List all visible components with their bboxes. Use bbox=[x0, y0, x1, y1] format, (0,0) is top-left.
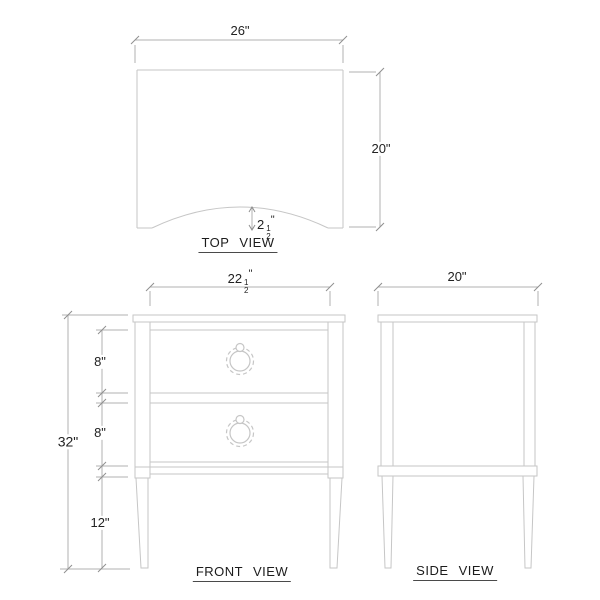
dim-front-width-whole: 22 bbox=[228, 271, 242, 286]
dim-top-width: 26" bbox=[230, 24, 249, 38]
drawer-ring-pull-top bbox=[227, 344, 254, 375]
front-left-leg bbox=[136, 478, 148, 568]
dim-front-drawer2: 8" bbox=[91, 426, 109, 440]
dim-side-depth: 20" bbox=[447, 270, 466, 284]
front-view-title: FRONT VIEW bbox=[193, 565, 291, 582]
side-view-title: SIDE VIEW bbox=[413, 564, 497, 581]
front-right-leg bbox=[330, 478, 342, 568]
dim-front-width-fraction: 12 bbox=[244, 279, 248, 296]
side-bottom-rail bbox=[378, 466, 537, 476]
front-right-leg-block bbox=[328, 467, 343, 478]
dim-front-width-unit: " bbox=[249, 268, 253, 280]
bow-front-arc bbox=[152, 207, 328, 228]
dim-top-depth: 20" bbox=[368, 142, 393, 156]
front-view-drawing bbox=[133, 315, 345, 568]
side-view-dimensions bbox=[378, 287, 538, 306]
side-left-leg bbox=[382, 476, 393, 568]
drawing-linework bbox=[0, 0, 600, 600]
top-view-dim-ticks bbox=[131, 36, 384, 231]
dim-front-leg: 12" bbox=[87, 516, 112, 530]
front-top-slab bbox=[133, 315, 345, 322]
dim-top-arc-unit: " bbox=[271, 214, 275, 226]
dim-front-width: 2212" bbox=[228, 269, 253, 296]
top-view-title: TOP VIEW bbox=[198, 236, 277, 253]
side-right-leg bbox=[523, 476, 534, 568]
technical-drawing-page: 26" 20" 212" TOP VIEW 2212" 8" 8" 12" 32… bbox=[0, 0, 600, 600]
drawer-ring-pull-bottom bbox=[227, 416, 254, 447]
top-view-drawing bbox=[137, 70, 343, 228]
dim-front-drawer1: 8" bbox=[91, 355, 109, 369]
dim-front-height: 32" bbox=[55, 434, 82, 449]
side-view-drawing bbox=[378, 315, 537, 568]
fraction-denominator: 2 bbox=[244, 287, 248, 295]
dim-top-arc-whole: 2 bbox=[257, 217, 264, 232]
front-left-leg-block bbox=[135, 467, 150, 478]
side-top-slab bbox=[378, 315, 537, 322]
